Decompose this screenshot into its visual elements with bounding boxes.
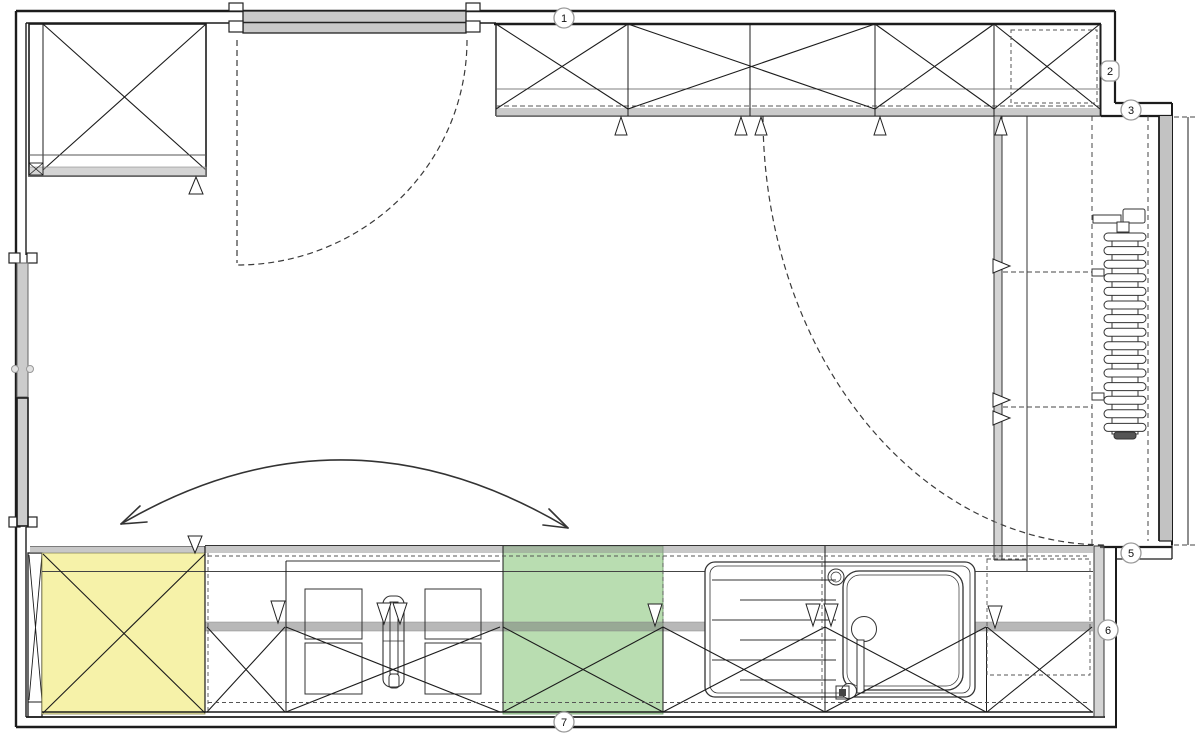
door-jamb [229, 21, 243, 32]
swap-arrow [121, 460, 568, 528]
cabinet-dashed-outline [1011, 30, 1097, 103]
callout-label: 5 [1128, 548, 1134, 560]
callout-3[interactable]: 3 [1121, 100, 1141, 120]
window-handle-icon [27, 366, 34, 373]
callout-label: 6 [1105, 625, 1111, 637]
cabinet-x-mark [43, 24, 206, 170]
arrowhead-left-icon [121, 506, 147, 524]
cabinet-plinth [29, 167, 206, 176]
door-jamb [466, 3, 480, 11]
kitchen-counter [28, 546, 1104, 718]
callout-label: 3 [1128, 105, 1134, 117]
sink-unit [705, 562, 975, 699]
right-wall-fill [1159, 116, 1172, 541]
cabinet-x-mark [994, 24, 1100, 109]
door-swing-arc-top [237, 40, 467, 265]
door-jamb [466, 21, 480, 32]
filler-panel [28, 553, 42, 717]
radiator-tab [1092, 393, 1104, 400]
callout-1[interactable]: 1 [554, 8, 574, 28]
callout-label: 2 [1107, 66, 1113, 78]
tall-cabinet-top-left [29, 24, 206, 176]
cabinet-x-mark [628, 24, 875, 109]
marker-triangle-down [377, 603, 391, 624]
door-jamb [229, 3, 243, 11]
callout-5[interactable]: 5 [1121, 543, 1141, 563]
radiator-cap [1114, 432, 1136, 439]
callout-label: 1 [561, 13, 567, 25]
window-sash-lower [17, 398, 28, 526]
dashed-appliance-outline [987, 559, 1090, 675]
callout-6[interactable]: 6 [1098, 620, 1118, 640]
radiator-tab [1092, 269, 1104, 276]
arrowhead-right-icon [543, 509, 568, 528]
marker-triangle-down [393, 603, 407, 624]
marker-triangle-up [189, 177, 203, 194]
floor-plan-canvas: 123567 [0, 0, 1200, 736]
radiator-valve-icon [1123, 209, 1145, 223]
radiator [1092, 209, 1146, 439]
callout-7[interactable]: 7 [554, 712, 574, 732]
faucet-icon [852, 617, 877, 642]
left-window [9, 253, 37, 527]
marker-triangle-up [735, 117, 747, 135]
cabinet-x-mark [875, 24, 994, 109]
window-sash-upper [17, 263, 28, 397]
marker-triangle-up [615, 117, 627, 135]
window-jamb [9, 253, 20, 263]
door-swing-arc-right [763, 116, 1106, 545]
window-jamb [27, 253, 37, 263]
window-handle-icon [12, 366, 19, 373]
counter-back-strip [30, 546, 1093, 553]
top-door [229, 3, 480, 33]
marker-triangle-up [755, 117, 767, 135]
callout-2[interactable]: 2 [1101, 61, 1119, 81]
marker-triangle-down [271, 601, 285, 623]
cabinet-row-plinth [496, 108, 1100, 116]
radiator-neck [1117, 222, 1129, 232]
marker-triangle-up [874, 117, 886, 135]
faucet-stem [857, 640, 864, 693]
cabinet-x-mark [496, 24, 628, 109]
wall-cabinet-row-top [494, 24, 1101, 116]
swap-arrow-curve [121, 460, 568, 528]
floor-plan: 123567 [0, 0, 1200, 736]
callout-label: 7 [561, 717, 567, 729]
